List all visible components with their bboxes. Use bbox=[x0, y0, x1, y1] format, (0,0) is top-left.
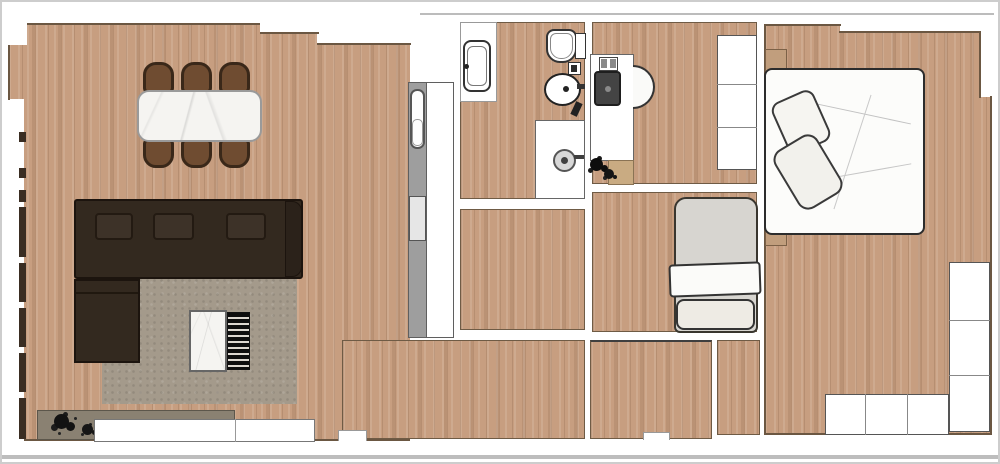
side-strip-floor bbox=[717, 340, 760, 435]
window-tick-2 bbox=[19, 168, 26, 178]
window-segment-3 bbox=[19, 308, 26, 347]
entry-hall-floor bbox=[590, 340, 712, 439]
kitchen-sink-basin-left bbox=[601, 59, 607, 68]
single-bed-blanket bbox=[668, 261, 761, 297]
single-bed-pillow bbox=[676, 299, 755, 330]
shower-head-dot bbox=[561, 157, 568, 164]
coffee-table-slats bbox=[227, 312, 250, 370]
dining-table bbox=[137, 90, 262, 142]
tv-bench-divider bbox=[235, 419, 236, 442]
kitchen-plant-2 bbox=[604, 169, 614, 179]
bedroom-top-edge-1 bbox=[764, 24, 841, 26]
dining-chair-bottom-3 bbox=[219, 138, 250, 168]
kitchen-tall-cabinet-line-1 bbox=[717, 84, 757, 85]
living-top-edge-3 bbox=[317, 43, 411, 45]
kitchenette-sink-basin bbox=[412, 119, 423, 146]
kitchen-plant-1 bbox=[590, 158, 603, 171]
window-tick-1 bbox=[19, 132, 26, 142]
kitchen-tall-cabinet bbox=[717, 35, 757, 170]
window-segment-2 bbox=[19, 263, 26, 302]
toilet-handle bbox=[577, 84, 585, 89]
bottom-frame-band bbox=[2, 455, 998, 459]
dining-chair-bottom-2 bbox=[181, 138, 212, 168]
wardrobe-right-line-1 bbox=[949, 320, 990, 321]
toilet-cistern bbox=[575, 33, 586, 59]
mid-hall-floor bbox=[460, 209, 585, 330]
sofa-armrest bbox=[285, 201, 302, 277]
kitchen-sink-basin-right bbox=[610, 59, 616, 68]
bedroom-right-edge-2 bbox=[990, 96, 992, 435]
kitchen-tall-cabinet-line-2 bbox=[717, 127, 757, 128]
outer-top-line bbox=[420, 13, 994, 15]
kitchenette-appliance bbox=[409, 196, 426, 241]
floor-plan-canvas bbox=[0, 0, 1000, 464]
wardrobe-right-line-2 bbox=[949, 375, 990, 376]
living-left-edge bbox=[8, 45, 10, 100]
vanity-faucet-dot bbox=[464, 64, 469, 69]
corridor-floor bbox=[342, 340, 585, 439]
dining-chair-bottom-1 bbox=[143, 138, 174, 168]
bedroom-right-edge-1 bbox=[979, 32, 981, 98]
console-plant-1 bbox=[54, 414, 69, 429]
wardrobe-right bbox=[949, 262, 990, 432]
bathtub-basin bbox=[550, 33, 573, 59]
sofa-chaise-divider bbox=[76, 292, 138, 294]
wardrobe-bottom-line-1 bbox=[865, 394, 866, 435]
sofa-cushion-1 bbox=[95, 213, 133, 240]
flush-plate-mark bbox=[571, 65, 577, 72]
wardrobe-bottom-line-2 bbox=[907, 394, 908, 435]
sofa-cushion-2 bbox=[153, 213, 194, 240]
window-segment-5 bbox=[19, 398, 26, 439]
console-plant-2 bbox=[82, 424, 93, 435]
window-tick-3 bbox=[19, 190, 26, 202]
kitchenette-cabinet bbox=[426, 82, 454, 338]
living-top-edge-2 bbox=[260, 32, 319, 34]
living-top-edge-1 bbox=[27, 23, 260, 25]
wardrobe-bottom bbox=[825, 394, 949, 435]
toilet-dot bbox=[563, 86, 569, 92]
coffee-table-marble bbox=[189, 310, 227, 372]
shower-arm bbox=[574, 155, 584, 159]
sofa-cushion-3 bbox=[226, 213, 266, 240]
door-notch-2 bbox=[643, 432, 670, 440]
tv-bench bbox=[94, 419, 315, 442]
cooktop-dot bbox=[605, 86, 611, 92]
door-notch-1 bbox=[338, 430, 367, 441]
window-segment-4 bbox=[19, 353, 26, 392]
bedroom-top-edge-2 bbox=[839, 31, 981, 33]
window-segment-1 bbox=[19, 207, 26, 257]
vanity-sink-basin bbox=[467, 46, 487, 86]
